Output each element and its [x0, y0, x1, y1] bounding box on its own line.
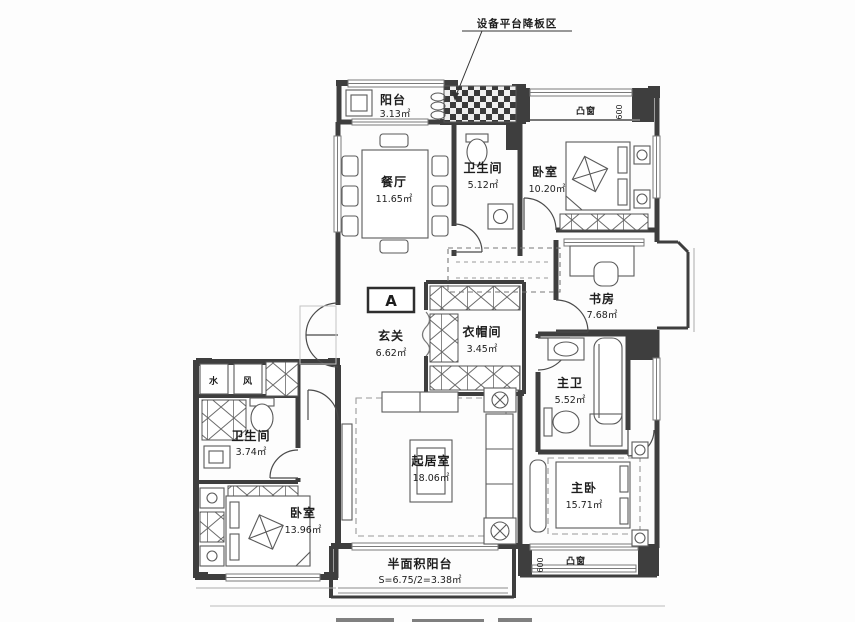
master-bath-name: 主卫 — [557, 375, 583, 390]
equipment-platform-label: 设备平台降板区 — [477, 17, 558, 30]
wind-shaft-label: 风 — [243, 376, 253, 387]
study-name: 书房 — [589, 291, 615, 306]
balcony-area: 3.13㎡ — [380, 109, 411, 120]
cloakroom-cabinet-left — [430, 314, 458, 362]
unit-label: A — [385, 292, 397, 310]
cropped-caption-remnant — [336, 618, 532, 622]
bedroom-tr-wardrobe — [560, 214, 648, 230]
bedroom-tr-name: 卧室 — [532, 164, 558, 179]
sink-top-bath — [488, 204, 513, 229]
dining-name: 餐厅 — [381, 174, 407, 189]
study-desk — [570, 246, 634, 286]
balcony-name: 阳台 — [380, 92, 406, 107]
cloakroom-cabinet-top — [430, 286, 520, 310]
bed-top-right — [566, 142, 650, 210]
cloakroom-area: 3.45㎡ — [467, 344, 498, 355]
study-area: 7.68㎡ — [587, 310, 618, 321]
half-balcony-name: 半面积阳台 — [387, 556, 452, 571]
shaft-hatch — [266, 362, 298, 396]
bedroom-bl-cabinet — [200, 512, 224, 542]
bay-window-top-dim: 600 — [615, 104, 624, 119]
cloakroom-name: 衣帽间 — [462, 324, 501, 339]
master-bath-area: 5.52㎡ — [555, 395, 586, 406]
bedroom-bl-name: 卧室 — [290, 505, 316, 520]
bath-top-area: 5.12㎡ — [468, 180, 499, 191]
living-area: 18.06㎡ — [413, 473, 450, 484]
living-name: 起居室 — [410, 453, 450, 468]
bay-window-bottom-label: 凸窗 — [566, 555, 586, 567]
bath-left-area: 3.74㎡ — [236, 447, 267, 458]
half-balcony-area: S=6.75/2=3.38㎡ — [379, 575, 462, 586]
master-bedroom-area: 15.71㎡ — [566, 500, 603, 511]
dining-area: 11.65㎡ — [376, 194, 413, 205]
floor-plan-drawing: 设备平台降板区 阳台 3.13㎡ 凸窗 600 餐厅 11.65㎡ 卫生间 5.… — [0, 0, 855, 622]
corridor-ceiling — [448, 248, 560, 292]
foyer-name: 玄关 — [378, 328, 404, 343]
bath-left-name: 卫生间 — [231, 428, 270, 443]
equipment-platform-hatch — [444, 86, 516, 122]
master-bath-fixtures — [544, 338, 622, 446]
cloakroom-cabinet-bottom — [430, 366, 520, 390]
washing-machine — [346, 90, 372, 116]
floor-plan-page: 设备平台降板区 阳台 3.13㎡ 凸窗 600 餐厅 11.65㎡ 卫生间 5.… — [0, 0, 855, 622]
bedroom-tr-area: 10.20㎡ — [529, 184, 566, 195]
water-shaft-label: 水 — [209, 375, 219, 387]
foyer-area: 6.62㎡ — [376, 348, 407, 359]
bay-window-bottom-dim: 600 — [536, 557, 545, 572]
entry-door-leaf-top — [306, 303, 338, 335]
bath-top-name: 卫生间 — [463, 160, 502, 175]
bedroom-bl-area: 13.96㎡ — [285, 525, 322, 536]
drain-stack — [431, 93, 445, 119]
bay-window-top-label: 凸窗 — [576, 105, 596, 117]
master-bedroom-name: 主卧 — [571, 480, 597, 495]
